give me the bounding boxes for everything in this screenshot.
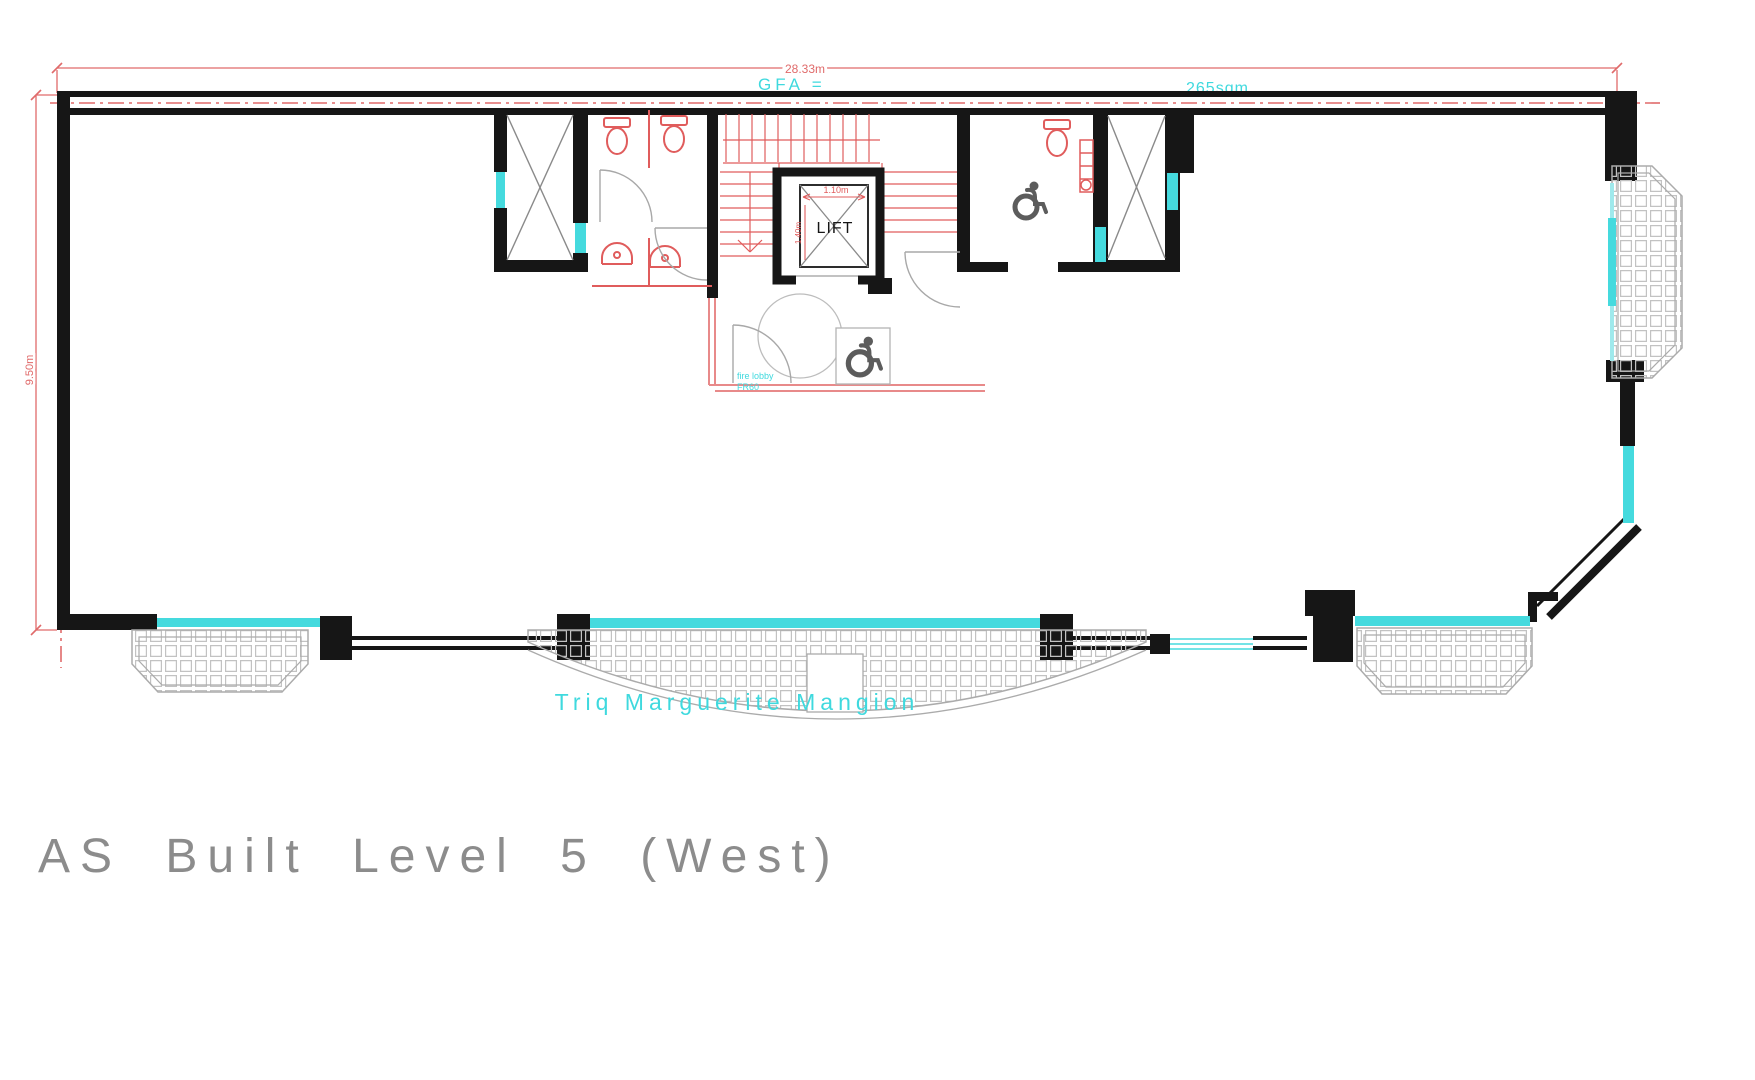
svg-text:FR60: FR60 [737,382,759,392]
sink-icon [602,243,632,264]
turning-circle [758,294,842,378]
floor-plan-sheet: 28.33m 9.50m GFA = 265sqm [0,0,1755,1080]
window-strip [1355,616,1530,626]
balcony-bottom-right [1357,628,1532,694]
toilet-icon [661,116,687,152]
vent-window [1167,173,1178,210]
balcony-right-bay [1612,166,1682,378]
dimension-top-label: 28.33m [785,62,825,76]
lift-depth-label: 1.40m [794,222,803,245]
door-arc [905,252,960,307]
vent-window [1095,227,1106,262]
window-strip [1623,446,1634,523]
lift-lobby: fire lobby FR60 [709,294,985,392]
wc-stalls [592,110,712,286]
drawing-title: AS Built Level 5 (West) [38,830,841,883]
toilet-icon [604,118,630,154]
sink-icon [650,246,680,267]
shaft-left [507,115,573,260]
vent-window [575,223,586,253]
dimension-left: 9.50m [24,90,57,635]
wheelchair-icon [1015,182,1046,219]
vent-window [496,172,505,208]
window-strip [157,618,320,627]
window-triple-line [1170,639,1253,649]
accessible-wc [905,120,1093,307]
fire-lobby-note: fire lobby FR60 [737,371,774,392]
windows [157,172,1634,649]
balcony-bottom-left [132,630,308,692]
lift-width-label: 1.10m [823,185,848,195]
dimension-left-label: 9.50m [24,355,36,386]
radiator-fixture [1080,140,1093,192]
svg-text:fire lobby: fire lobby [737,371,774,381]
window-strip [1608,218,1616,306]
window-strip [590,618,1040,628]
floor-plan-drawing: 28.33m 9.50m GFA = 265sqm [0,0,1755,1080]
angled-wall [1537,516,1639,617]
toilet-icon [1044,120,1070,156]
lift-label: LIFT [817,220,854,237]
lift: 1.10m 1.40m LIFT [777,172,880,286]
shaft-right [1108,116,1165,258]
street-label: Triq Marguerite Mangion [555,689,920,715]
